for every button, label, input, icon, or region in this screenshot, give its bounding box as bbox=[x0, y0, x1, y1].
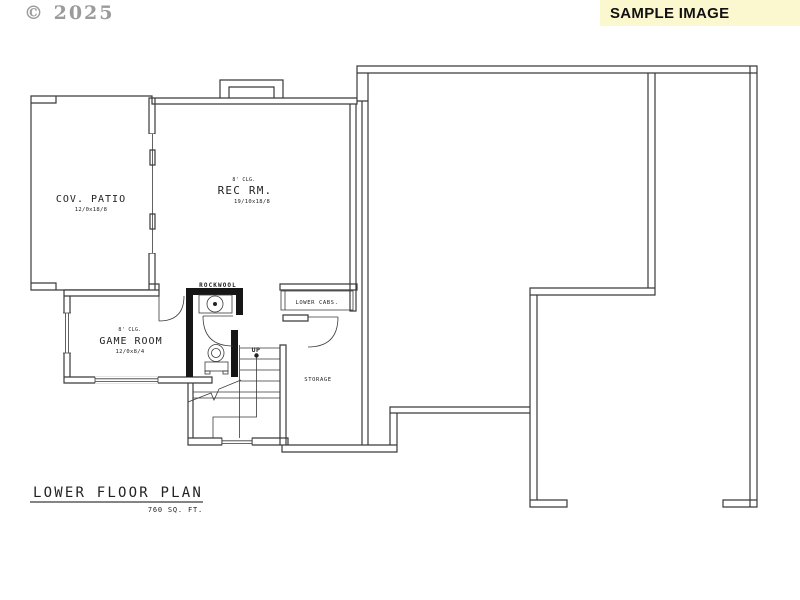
window-gap bbox=[63, 313, 71, 353]
window-game-room-bottom bbox=[95, 377, 158, 384]
storage-door bbox=[308, 317, 338, 347]
rec-rm-ceiling: 8' CLG. bbox=[232, 177, 255, 183]
toilet-icon bbox=[205, 345, 228, 375]
exterior-and-interior-walls bbox=[64, 66, 757, 507]
storage-label: STORAGE bbox=[304, 377, 331, 383]
cov-patio-dims: 12/0x18/8 bbox=[75, 207, 108, 213]
plan-area: 760 SQ. FT. bbox=[148, 506, 203, 514]
toilet-bowl bbox=[208, 345, 224, 362]
game-room-label: GAME ROOM bbox=[99, 336, 162, 347]
floor-plan-page: © 2025 SAMPLE IMAGE bbox=[0, 0, 800, 600]
toilet-foot bbox=[205, 371, 210, 374]
window-gap bbox=[95, 377, 158, 384]
lower-cabs-label: LOWER CABS. bbox=[295, 300, 338, 306]
patio-outline bbox=[31, 96, 152, 290]
toilet-bowl-inner bbox=[212, 349, 221, 358]
floor-plan-drawing: COV. PATIO 12/0x18/8 8' CLG. REC RM. 19/… bbox=[0, 0, 800, 600]
window-game-room-left bbox=[63, 313, 71, 353]
cov-patio-label: COV. PATIO bbox=[56, 194, 126, 205]
game-room-dims: 12/0x8/4 bbox=[116, 349, 145, 355]
rec-rm-dims: 19/10x18/8 bbox=[234, 199, 270, 205]
plan-title: LOWER FLOOR PLAN bbox=[33, 485, 203, 501]
game-room-door bbox=[159, 296, 184, 321]
rec-rm-label: REC RM. bbox=[218, 184, 273, 197]
water-heater-icon bbox=[199, 295, 232, 313]
rockwool-label: ROCKWOOL bbox=[199, 282, 237, 289]
window-hall-bottom bbox=[222, 438, 252, 446]
toilet-foot bbox=[223, 371, 228, 374]
bathroom-heavy-walls bbox=[186, 288, 243, 377]
door-arc bbox=[308, 317, 338, 347]
door-arc bbox=[159, 296, 184, 321]
door-arc bbox=[203, 316, 233, 346]
water-heater-center bbox=[213, 302, 217, 306]
title-block: LOWER FLOOR PLAN 760 SQ. FT. bbox=[30, 485, 203, 514]
toilet-tank bbox=[205, 362, 228, 371]
up-label: UP bbox=[252, 346, 261, 354]
window-patio-rec-wall bbox=[148, 134, 156, 253]
room-labels: COV. PATIO 12/0x18/8 8' CLG. REC RM. 19/… bbox=[56, 177, 339, 383]
patio-walls bbox=[31, 96, 152, 290]
bathroom-door bbox=[203, 316, 233, 346]
game-room-ceiling: 8' CLG. bbox=[118, 327, 141, 333]
window-gap bbox=[222, 438, 252, 446]
